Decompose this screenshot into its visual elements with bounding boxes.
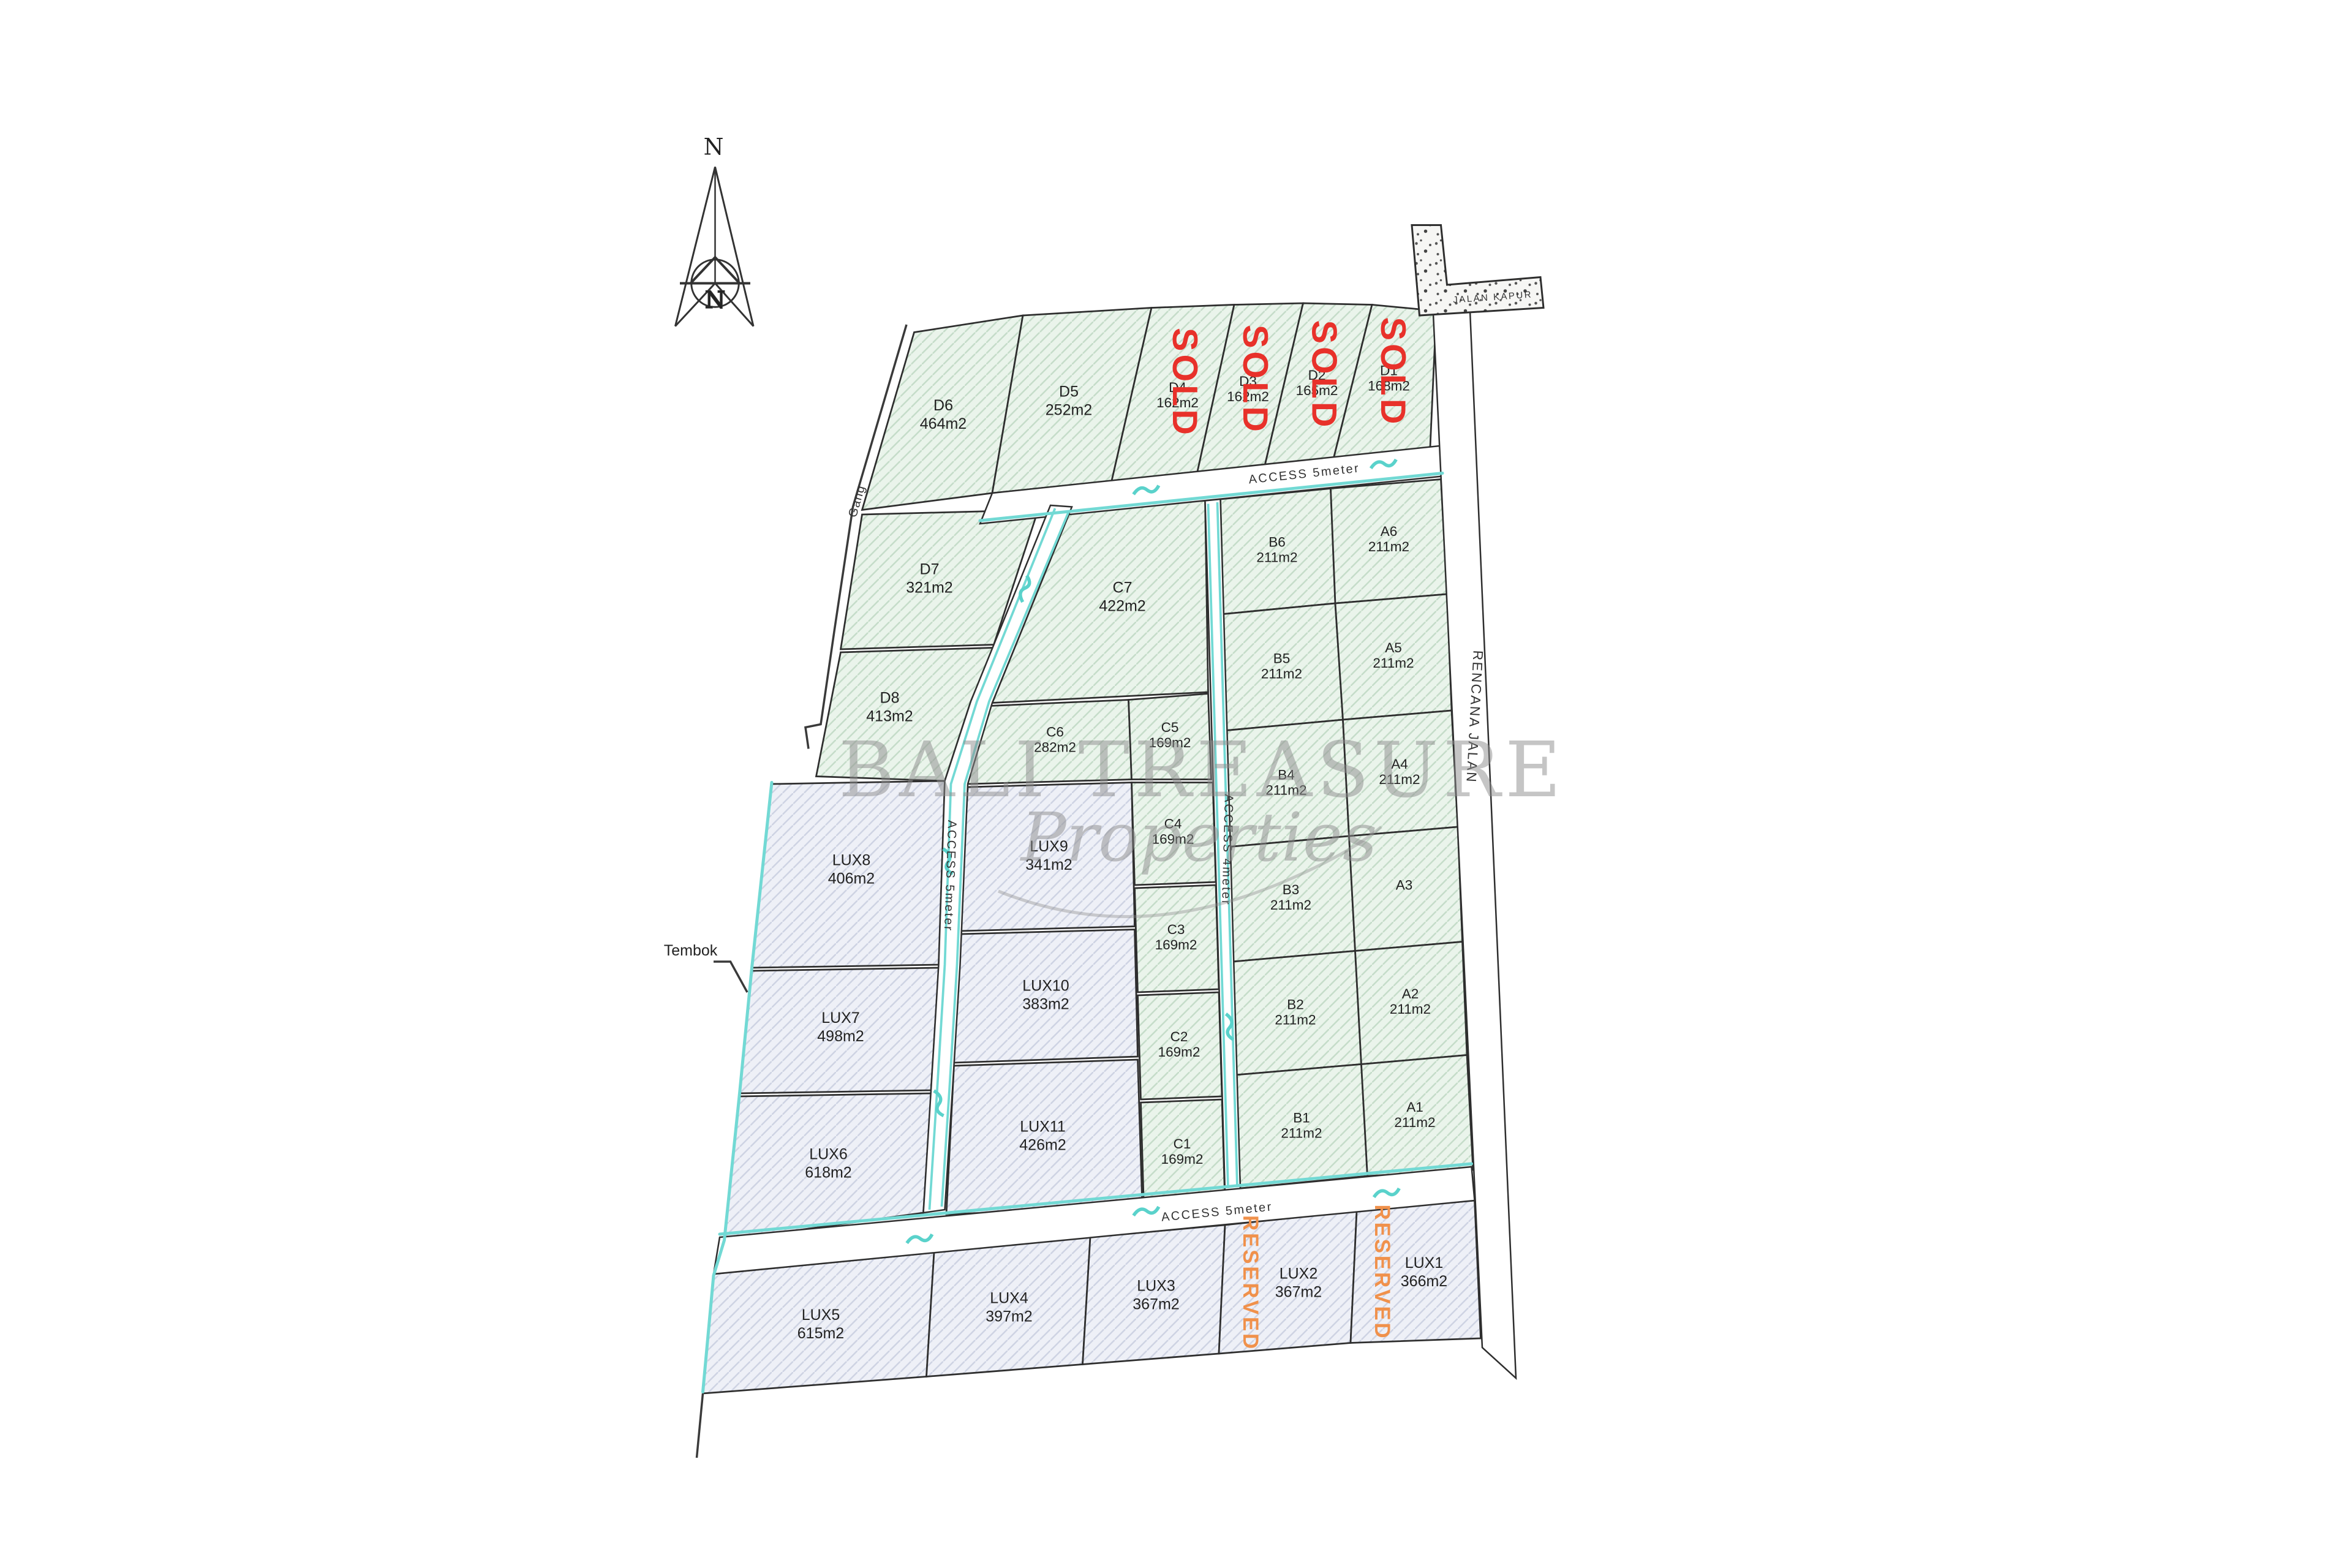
plot-lux3-label: LUX3367m2 bbox=[1133, 1278, 1179, 1313]
plot-lux4-label: LUX4397m2 bbox=[986, 1290, 1032, 1325]
plot-lux5-label: LUX5615m2 bbox=[797, 1306, 844, 1342]
compass-rose: N bbox=[676, 167, 754, 326]
site-plan: N N JALAN KAPUR RENCANA JALAN ACCESS 5me… bbox=[0, 0, 2352, 1568]
reserved-badge-lux2: RESERVED bbox=[1238, 1215, 1262, 1351]
plot-lux10-label: LUX10383m2 bbox=[1022, 978, 1069, 1013]
plot-lux11-label: LUX11426m2 bbox=[1019, 1118, 1066, 1154]
plot-lux8-label: LUX8406m2 bbox=[828, 852, 875, 888]
plot-lux3 bbox=[1083, 1225, 1226, 1365]
boundary-tail bbox=[697, 1393, 703, 1458]
tembok-label: Tembok bbox=[664, 942, 718, 959]
compass-north-label: N bbox=[704, 134, 724, 160]
compass-inner-n: N bbox=[705, 287, 725, 314]
plot-lux7-label: LUX7498m2 bbox=[817, 1009, 864, 1045]
plot-lux2-label: LUX2367m2 bbox=[1275, 1265, 1322, 1301]
plot-a3-label: A3 bbox=[1396, 878, 1413, 893]
sold-badge-d1: SOLD bbox=[1373, 317, 1412, 428]
plot-lux4 bbox=[927, 1237, 1091, 1377]
sold-badge-d2: SOLD bbox=[1305, 320, 1344, 431]
sold-badge-d4: SOLD bbox=[1165, 328, 1204, 438]
tembok-leader bbox=[714, 962, 747, 992]
plot-lux6-label: LUX6618m2 bbox=[805, 1146, 851, 1182]
reserved-badge-lux1: RESERVED bbox=[1370, 1205, 1394, 1341]
sold-badge-d3: SOLD bbox=[1235, 325, 1275, 435]
plot-lux1-label: LUX1366m2 bbox=[1401, 1254, 1447, 1290]
